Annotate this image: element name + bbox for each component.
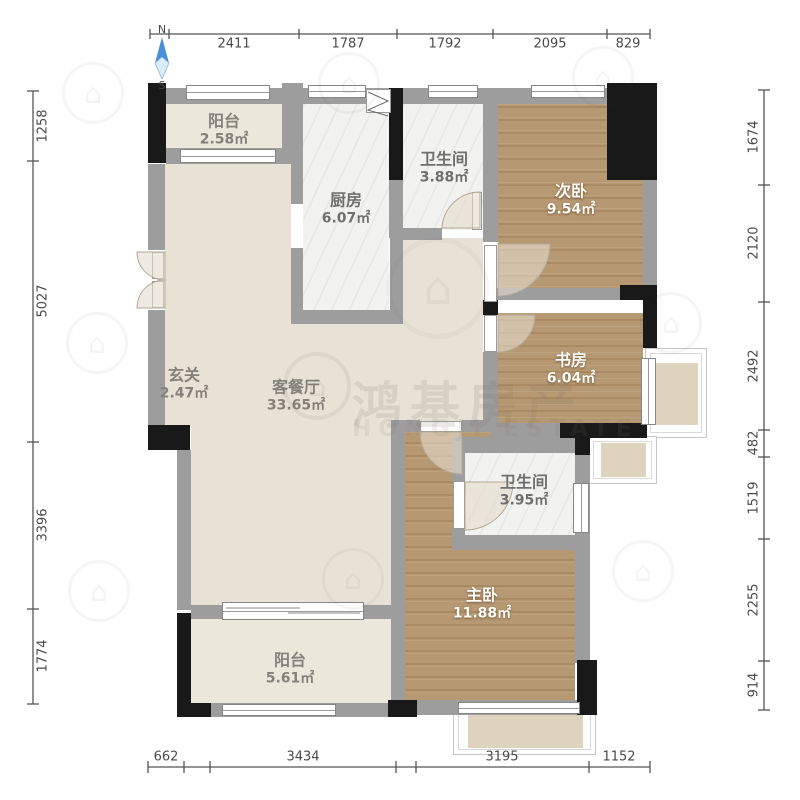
dim-label-bottom: 3434 — [286, 750, 319, 765]
room-label-bath-south: 卫生间 3.95㎡ — [500, 473, 549, 510]
wall — [391, 420, 405, 610]
wall-black — [575, 437, 590, 455]
room-name: 玄关 — [160, 366, 209, 385]
dim-label-bottom: 3195 — [485, 750, 518, 765]
wall — [575, 550, 590, 663]
dim-label-left: 3396 — [36, 508, 51, 541]
room-label-bedroom-second: 次卧 9.54㎡ — [547, 182, 596, 219]
room-name: 阳台 — [200, 112, 249, 131]
room-name: 卫生间 — [500, 473, 549, 492]
room-label-bath-north: 卫生间 3.88㎡ — [420, 150, 469, 187]
door-leaf-bedroom-master — [420, 421, 462, 432]
dim-label-left: 1258 — [36, 109, 51, 142]
dim-label-right: 1519 — [747, 481, 762, 514]
dim-label-left: 1774 — [36, 639, 51, 672]
dim-label-bottom: 1152 — [602, 750, 635, 765]
dim-label-right: 914 — [747, 673, 762, 698]
room-area: 11.88㎡ — [453, 605, 511, 623]
room-name: 书房 — [547, 351, 596, 370]
compass: N S — [146, 24, 178, 92]
floor-plan-page: { "compass": { "north_label": "N", "sout… — [0, 0, 800, 800]
room-name: 阳台 — [266, 651, 315, 670]
north-arrow-icon — [147, 36, 177, 80]
window-kitchen — [308, 85, 366, 98]
wall — [390, 238, 403, 318]
wall — [291, 310, 403, 324]
entry-door-leaf — [152, 281, 164, 308]
door-leaf-study — [484, 315, 497, 352]
wall — [177, 450, 191, 610]
wall — [452, 437, 465, 482]
wall — [483, 352, 498, 425]
room-area: 6.04㎡ — [547, 370, 596, 388]
dim-label-right: 2120 — [747, 226, 762, 259]
door-leaf-bath-north — [472, 192, 482, 230]
room-name: 主卧 — [453, 586, 511, 605]
wall-black — [483, 300, 498, 315]
wall-black — [607, 83, 657, 180]
room-label-living-dining: 客餐厅 33.65㎡ — [267, 378, 325, 415]
wall-black — [620, 285, 657, 300]
wall — [291, 164, 303, 204]
room-label-balcony-south: 阳台 5.61㎡ — [266, 651, 315, 688]
wall-black — [177, 703, 211, 717]
bay-window-sill — [601, 443, 646, 477]
wall — [490, 423, 562, 437]
room-label-study: 书房 6.04㎡ — [547, 351, 596, 388]
room-area: 3.95㎡ — [500, 492, 549, 510]
dim-label-top: 2095 — [533, 37, 566, 52]
window-balcony-north — [186, 85, 270, 100]
compass-north-label: N — [146, 24, 178, 36]
dim-label-right: 2492 — [747, 349, 762, 382]
dim-label-top: 1787 — [331, 37, 364, 52]
dim-label-bottom: 662 — [154, 750, 179, 765]
dim-label-top: 2411 — [217, 37, 250, 52]
window-bath-north — [428, 85, 478, 98]
window-study — [641, 358, 656, 425]
wall — [391, 610, 405, 705]
wall — [148, 164, 165, 250]
wall-black — [389, 88, 403, 180]
wall-black — [177, 613, 191, 717]
wall-black — [388, 700, 417, 717]
room-area: 2.47㎡ — [160, 385, 209, 403]
wall — [282, 83, 303, 164]
room-area: 33.65㎡ — [267, 397, 325, 415]
bay-window-sill — [656, 363, 698, 425]
sliding-door-balcony-south — [222, 602, 364, 620]
door-leaf-bedroom-second — [484, 245, 497, 302]
dim-label-top: 829 — [616, 37, 641, 52]
wall-black — [560, 423, 647, 438]
watermark-logo-icon: ⌂ — [68, 560, 130, 622]
room-name: 客餐厅 — [267, 378, 325, 397]
room-name: 次卧 — [547, 182, 596, 201]
watermark-logo-icon: ⌂ — [612, 540, 674, 602]
window-bedroom-second — [531, 85, 605, 98]
wall — [643, 180, 657, 300]
watermark-logo-icon: ⌂ — [66, 312, 128, 374]
room-label-balcony-north: 阳台 2.58㎡ — [200, 112, 249, 149]
wall — [398, 228, 442, 240]
room-label-kitchen: 厨房 6.07㎡ — [322, 191, 371, 228]
wall-black — [148, 83, 166, 163]
dim-label-right: 2255 — [747, 583, 762, 616]
room-label-bedroom-master: 主卧 11.88㎡ — [453, 586, 511, 623]
wall — [462, 420, 500, 432]
dim-label-left: 5027 — [36, 284, 51, 317]
room-name: 厨房 — [322, 191, 371, 210]
bay-window-east — [588, 436, 657, 484]
room-floor-hallway — [403, 238, 483, 324]
room-label-entry: 玄关 2.47㎡ — [160, 366, 209, 403]
window-balcony-living — [180, 149, 276, 163]
window-bedroom-master — [458, 702, 580, 714]
dim-label-right: 482 — [747, 431, 762, 456]
dim-label-top: 1792 — [428, 37, 461, 52]
room-area: 6.07㎡ — [322, 210, 371, 228]
folding-door-kitchen — [366, 89, 391, 113]
room-name: 卫生间 — [420, 150, 469, 169]
dim-label-right: 1674 — [747, 120, 762, 153]
wall — [291, 248, 303, 310]
room-area: 3.88㎡ — [420, 169, 469, 187]
wall — [452, 535, 590, 550]
room-area: 9.54㎡ — [547, 201, 596, 219]
window-balcony-south — [222, 704, 336, 716]
room-floor-living-south — [191, 425, 391, 605]
compass-south-label: S — [146, 80, 178, 92]
wall-black — [577, 660, 597, 715]
wall-black — [643, 300, 657, 348]
window-bath-south — [573, 483, 589, 533]
wall — [458, 437, 582, 453]
door-leaf-bath-south — [453, 481, 465, 529]
entry-door-leaf — [152, 252, 164, 279]
room-area: 5.61㎡ — [266, 670, 315, 688]
room-area: 2.58㎡ — [200, 131, 249, 149]
wall-black — [148, 425, 190, 450]
watermark-logo-icon: ⌂ — [62, 62, 124, 124]
wall — [483, 88, 498, 242]
